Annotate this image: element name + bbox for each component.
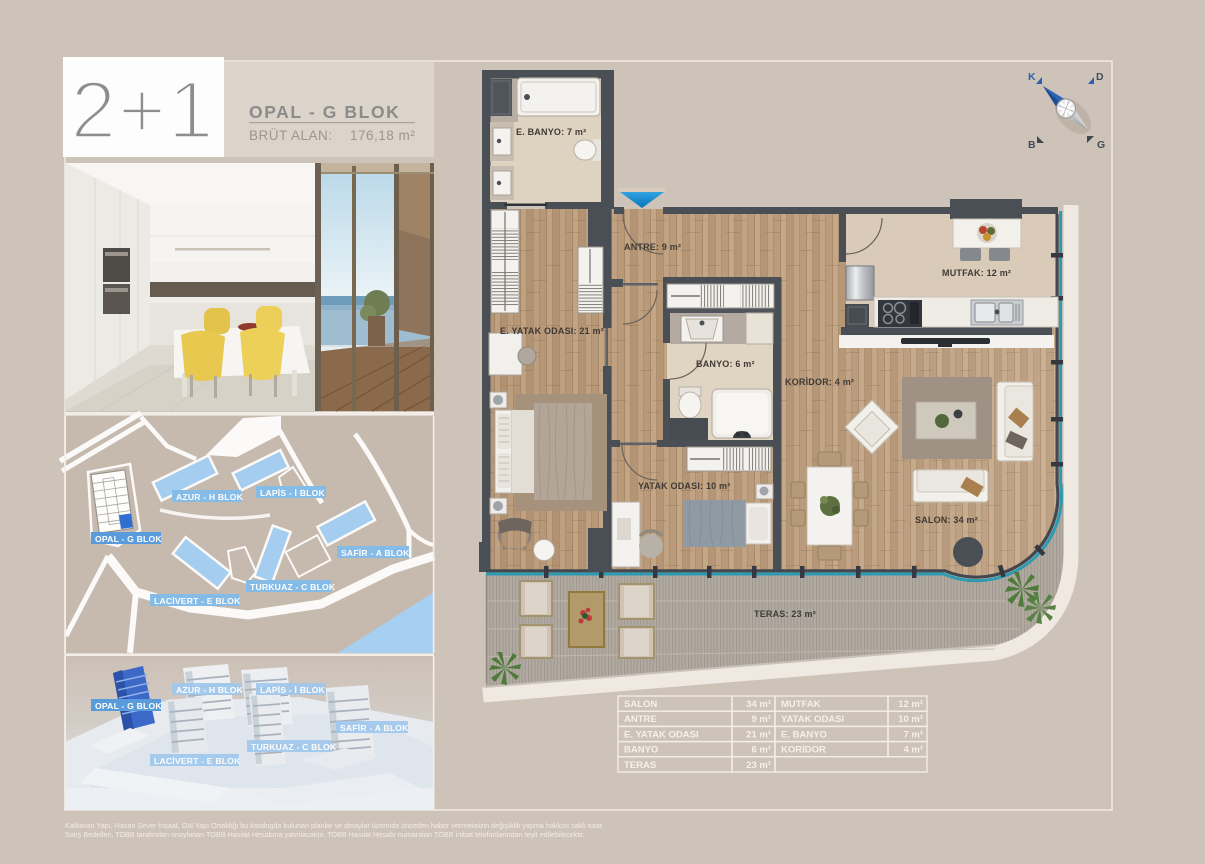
svg-text:OPAL - G BLOK: OPAL - G BLOK	[95, 534, 162, 544]
svg-text:23 m²: 23 m²	[746, 760, 771, 771]
svg-text:D: D	[1096, 71, 1104, 83]
svg-text:TERAS: TERAS	[624, 760, 656, 771]
svg-text:MUTFAK: MUTFAK	[781, 699, 821, 710]
svg-text:SALON: SALON	[624, 699, 657, 710]
svg-text:E. BANYO: E. BANYO	[781, 729, 827, 740]
svg-text:E. YATAK ODASI: E. YATAK ODASI	[624, 729, 699, 740]
svg-text:12 m²: 12 m²	[898, 699, 923, 710]
svg-text:LAPİS - İ BLOK: LAPİS - İ BLOK	[260, 685, 325, 695]
svg-text:10 m²: 10 m²	[898, 714, 923, 725]
svg-text:B: B	[1028, 139, 1036, 151]
svg-text:LACİVERT - E BLOK: LACİVERT - E BLOK	[154, 756, 241, 766]
svg-text:34 m²: 34 m²	[746, 699, 771, 710]
svg-text:21 m²: 21 m²	[746, 729, 771, 740]
svg-text:TURKUAZ - C BLOK: TURKUAZ - C BLOK	[250, 582, 336, 592]
svg-text:ANTRE: ANTRE	[624, 714, 657, 725]
svg-text:9 m²: 9 m²	[751, 714, 771, 725]
svg-text:G: G	[1097, 139, 1105, 151]
svg-text:ANTRE: 9 m²: ANTRE: 9 m²	[624, 242, 681, 252]
svg-text:SALON: 34 m²: SALON: 34 m²	[915, 515, 978, 525]
svg-text:BANYO: BANYO	[624, 745, 658, 756]
svg-text:LACİVERT - E BLOK: LACİVERT - E BLOK	[154, 596, 241, 606]
svg-text:LAPİS - İ BLOK: LAPİS - İ BLOK	[260, 488, 325, 498]
svg-text:4 m²: 4 m²	[903, 745, 923, 756]
svg-text:MUTFAK: 12 m²: MUTFAK: 12 m²	[942, 268, 1011, 278]
svg-text:6 m²: 6 m²	[751, 745, 771, 756]
svg-text:KORİDOR: 4 m²: KORİDOR: 4 m²	[785, 377, 854, 387]
svg-text:SAFİR - A BLOK: SAFİR - A BLOK	[341, 548, 410, 558]
svg-text:TERAS: 23 m²: TERAS: 23 m²	[754, 609, 816, 619]
svg-text:BRÜT ALAN:: BRÜT ALAN:	[249, 128, 333, 143]
svg-text:AZUR - H BLOK: AZUR - H BLOK	[176, 492, 244, 502]
svg-text:OPAL - G BLOK: OPAL - G BLOK	[95, 701, 162, 711]
svg-text:K: K	[1028, 71, 1036, 83]
svg-text:YATAK ODASI: 10 m²: YATAK ODASI: 10 m²	[638, 481, 730, 491]
svg-text:2+1: 2+1	[70, 65, 215, 156]
svg-text:SAFİR - A BLOK: SAFİR - A BLOK	[340, 723, 409, 733]
svg-text:Satış Bedelleri, TOBB tarafınd: Satış Bedelleri, TOBB tarafından onaylan…	[65, 830, 585, 839]
svg-text:YATAK ODASI: YATAK ODASI	[781, 714, 844, 725]
svg-text:E. YATAK ODASI: 21 m²: E. YATAK ODASI: 21 m²	[500, 326, 604, 336]
svg-text:Kalkavan Yapı, Hasan Sever İnş: Kalkavan Yapı, Hasan Sever İnşaat, Gül Y…	[65, 821, 604, 830]
svg-text:BANYO: 6 m²: BANYO: 6 m²	[696, 359, 755, 369]
svg-text:OPAL - G BLOK: OPAL - G BLOK	[249, 102, 400, 122]
svg-text:TURKUAZ - C BLOK: TURKUAZ - C BLOK	[251, 742, 337, 752]
svg-text:KORİDOR: KORİDOR	[781, 745, 826, 756]
svg-text:176,18 m²: 176,18 m²	[350, 128, 415, 143]
svg-text:7 m²: 7 m²	[903, 729, 923, 740]
svg-text:E. BANYO: 7 m²: E. BANYO: 7 m²	[516, 127, 586, 137]
svg-text:AZUR - H BLOK: AZUR - H BLOK	[176, 685, 244, 695]
